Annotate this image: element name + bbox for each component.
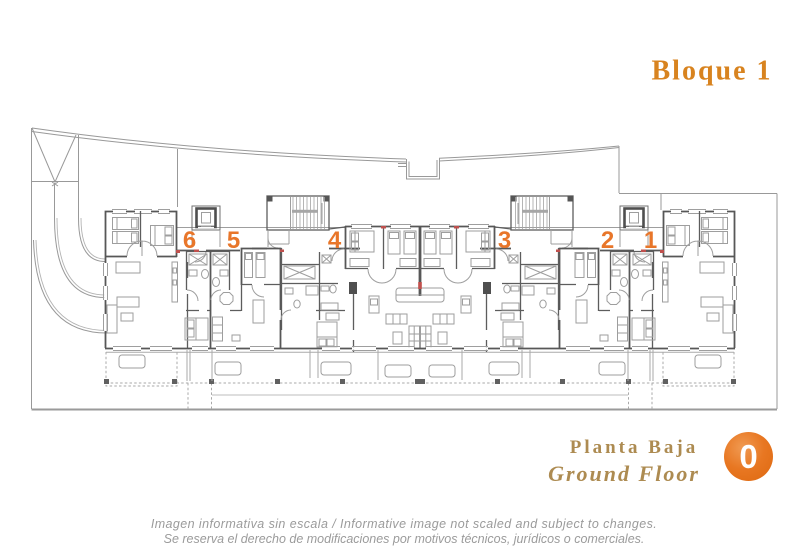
svg-text:1: 1 — [644, 227, 657, 254]
svg-text:Planta Baja: Planta Baja — [570, 437, 699, 458]
svg-text:3: 3 — [498, 227, 511, 254]
svg-text:Bloque 1: Bloque 1 — [651, 56, 772, 87]
svg-text:6: 6 — [183, 227, 196, 254]
svg-text:4: 4 — [328, 227, 342, 254]
svg-text:Imagen informativa sin escala: Imagen informativa sin escala / Informat… — [151, 517, 657, 531]
svg-text:Se reserva el derecho de modif: Se reserva el derecho de modificaciones … — [164, 532, 645, 546]
svg-text:Ground Floor: Ground Floor — [548, 461, 700, 486]
svg-text:0: 0 — [739, 438, 757, 475]
svg-text:5: 5 — [227, 227, 240, 254]
svg-text:2: 2 — [601, 227, 614, 254]
